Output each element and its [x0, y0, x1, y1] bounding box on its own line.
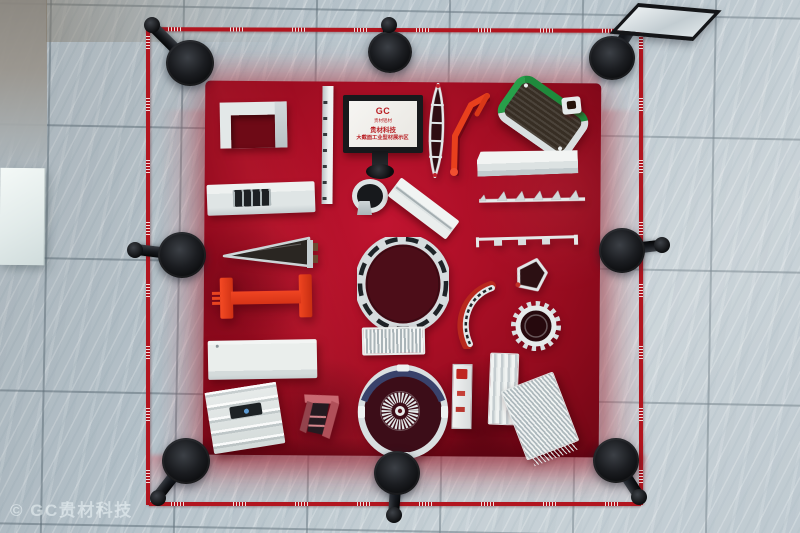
gc-logo: GC — [376, 106, 391, 117]
gear-ring-profile — [510, 300, 562, 352]
floor-dark-corner — [0, 0, 47, 172]
barrier-tape-right — [639, 31, 643, 505]
wide-flat-panel-profile — [208, 339, 318, 380]
exhibit-sign-base — [366, 164, 394, 179]
exhibition-floor-photo: GC 贵材铝材 贵材科技 大截面工业型材展示区 — [0, 0, 800, 533]
gc-logo-subtext: 贵材铝材 — [374, 118, 392, 124]
red-mark — [457, 391, 465, 396]
u-channel-right-leg — [275, 101, 288, 147]
pink-a-frame-profile — [295, 388, 342, 444]
stanchion-base — [166, 40, 214, 86]
stanchion-knob — [144, 17, 160, 33]
curved-arc-rack-profile — [450, 281, 496, 349]
pentagon-profile — [509, 254, 551, 296]
u-channel-profile — [220, 101, 288, 148]
stanchion-base — [589, 36, 635, 80]
stanchion-knob — [631, 489, 647, 505]
stanchion-knob — [381, 17, 397, 33]
small-square-tube-profile — [561, 96, 582, 115]
ibeam-fin — [212, 292, 221, 295]
large-ring-profile — [357, 237, 449, 331]
u-channel-opening — [231, 115, 276, 149]
watermark: © GC贵材科技 — [10, 496, 133, 521]
small-corrugated-heatsink — [362, 326, 425, 355]
tapered-wedge-profile — [221, 235, 319, 273]
ladder-strip-profile — [321, 86, 333, 204]
tabbed-bar-profile — [474, 233, 580, 250]
long-flat-bar-profile — [477, 148, 579, 177]
exhibit-sign-face: GC 贵材铝材 贵材科技 大截面工业型材展示区 — [349, 101, 417, 147]
stanchion-base — [374, 451, 420, 495]
ibeam-fin — [212, 302, 221, 305]
floor-top-shade — [46, 0, 296, 42]
exhibit-sign-frame: GC 贵材铝材 贵材科技 大截面工业型材展示区 — [343, 95, 423, 153]
stanchion-base — [162, 438, 210, 484]
barrier-tape-left — [146, 29, 150, 505]
ibeam-fin — [212, 297, 221, 300]
labelled-sample-strip — [451, 364, 472, 429]
stanchion-knob — [127, 242, 143, 258]
stanchion-knob — [386, 507, 402, 523]
rail-profile-with-slots — [206, 181, 315, 216]
red-label — [456, 369, 467, 379]
red-mark — [456, 407, 465, 412]
screw-dot — [523, 83, 529, 89]
stanchion-knob — [654, 237, 670, 253]
sign-title: 贵材科技 — [370, 127, 396, 135]
white-floor-panel — [0, 168, 45, 265]
large-fan-heatsink-profile — [357, 364, 449, 460]
stanchion-knob — [150, 490, 166, 506]
screw-dot — [557, 146, 563, 152]
red-ibeam-profile — [220, 274, 313, 320]
serrated-bar-profile — [477, 186, 587, 205]
round-tube-foot — [357, 201, 372, 215]
ibeam-web — [231, 290, 301, 304]
rail-slot — [233, 189, 272, 207]
stanchion-base — [158, 232, 206, 278]
carpet-reflection-left — [158, 110, 206, 460]
stanchion-base — [368, 31, 412, 73]
stepped-profile — [205, 382, 286, 454]
stanchion-base — [599, 228, 645, 273]
sign-subtitle: 大截面工业型材展示区 — [357, 135, 409, 142]
stanchion-base — [593, 438, 639, 483]
